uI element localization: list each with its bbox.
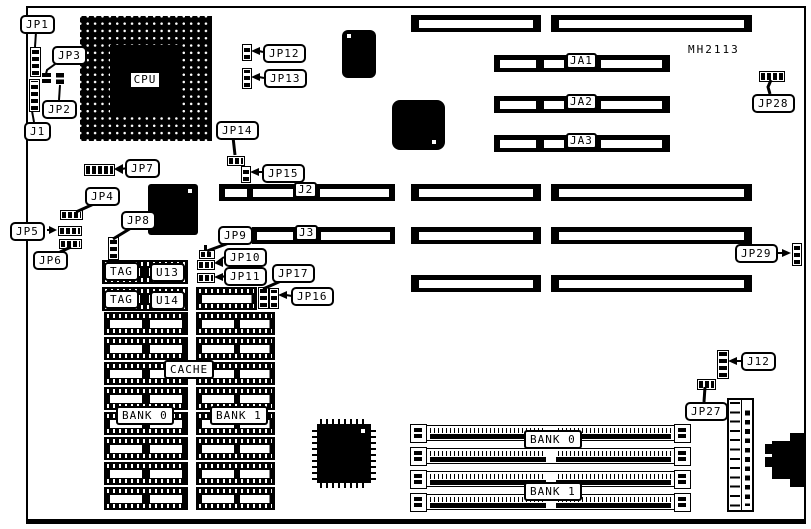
simm-bank0-label: BANK 0 [524, 430, 582, 449]
cache-bank0-label: BANK 0 [116, 406, 174, 425]
jp17-callout: JP17 [272, 264, 315, 283]
cache-label: CACHE [164, 360, 214, 379]
jp1-callout: JP1 [20, 15, 55, 34]
jp14-callout: JP14 [216, 121, 259, 140]
tag-label-bottom: TAG [104, 290, 139, 309]
jp2-callout: JP2 [42, 100, 77, 119]
cache-bank1-label: BANK 1 [210, 406, 268, 425]
jp10-callout: JP10 [224, 248, 267, 267]
u14-label: U14 [150, 291, 185, 310]
jp4-callout: JP4 [85, 187, 120, 206]
jp7-callout: JP7 [125, 159, 160, 178]
jp15-callout: JP15 [262, 164, 305, 183]
jp29-callout: JP29 [735, 244, 778, 263]
motherboard-diagram: CPU JA1 JA2 JA3 J2 J3 [0, 0, 811, 529]
jp9-callout: JP9 [218, 226, 253, 245]
jp27-callout: JP27 [685, 402, 728, 421]
j12-callout: J12 [741, 352, 776, 371]
jp6-callout: JP6 [33, 251, 68, 270]
jp12-callout: JP12 [263, 44, 306, 63]
jp5-callout: JP5 [10, 222, 45, 241]
jp28-callout: JP28 [752, 94, 795, 113]
jp11-callout: JP11 [224, 267, 267, 286]
tag-label-top: TAG [104, 262, 139, 281]
jp3-callout: JP3 [52, 46, 87, 65]
simm-bank1-label: BANK 1 [524, 482, 582, 501]
jp8-callout: JP8 [121, 211, 156, 230]
jp16-callout: JP16 [291, 287, 334, 306]
j1-callout: J1 [24, 122, 51, 141]
u13-label: U13 [150, 263, 185, 282]
jp13-callout: JP13 [264, 69, 307, 88]
